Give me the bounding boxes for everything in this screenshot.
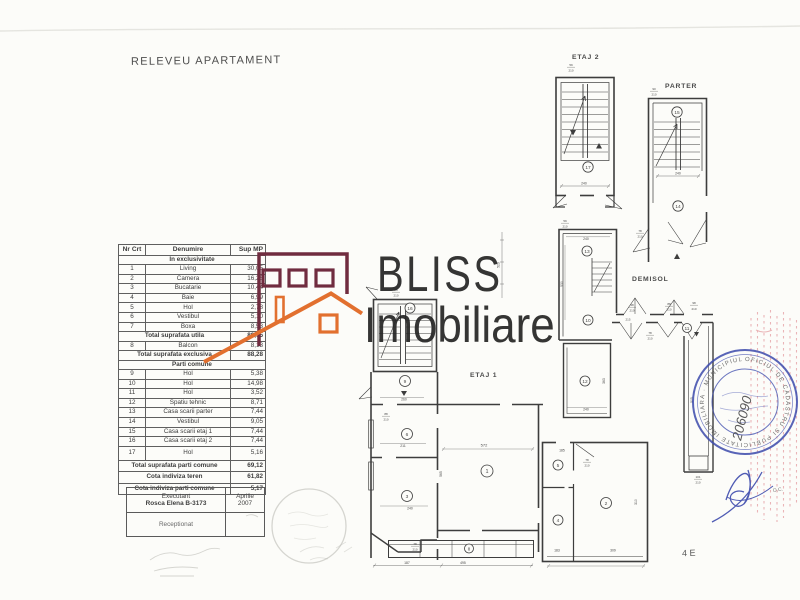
room-number-15: 15	[674, 110, 680, 116]
parter-plan: PARTER 15 240 14 90 210 78 210	[633, 83, 707, 262]
demisol-label: DEMISOL	[632, 276, 669, 283]
etaj2-plan: ETAJ 2 240 59 210 17	[553, 54, 622, 209]
dim-label: 211	[400, 444, 406, 448]
etaj1-label: ETAJ 1	[470, 372, 497, 379]
dim-label: 210	[647, 337, 652, 341]
pencil-handwriting	[150, 515, 352, 576]
dim-label: 59	[563, 219, 567, 223]
dim-label: 90	[652, 87, 656, 91]
room-number-2: 2	[605, 501, 608, 507]
etaj2-label: ETAJ 2	[572, 54, 599, 61]
document-title: RELEVEU APARTAMENT	[131, 54, 282, 68]
dim-label: 210	[691, 307, 696, 311]
room-number-11: 11	[685, 326, 690, 332]
dim-label: 240	[407, 507, 413, 511]
scan-fold-line	[0, 26, 800, 31]
dim-label: 363	[602, 378, 606, 384]
dim-label: 210	[584, 464, 589, 468]
room-number-6: 6	[406, 432, 409, 438]
room-number-4: 4	[557, 518, 560, 524]
stamp-registration-number: 206090	[729, 394, 755, 443]
page-mark: 4 E	[682, 548, 696, 558]
room-number-3: 3	[406, 494, 409, 500]
logo-roof-icon	[204, 294, 362, 363]
dim-label: 565	[439, 471, 443, 477]
room-number-17: 17	[585, 165, 591, 171]
dim-label: 210	[412, 548, 417, 552]
dim-label: 240	[583, 408, 589, 412]
dim-label: 88	[384, 412, 388, 416]
room-number-12: 12	[582, 379, 588, 385]
brand-subname: Imobiliare	[364, 300, 555, 350]
dim-label: 78	[648, 331, 652, 335]
dim-label: 572	[481, 443, 488, 448]
dim-label: 78	[638, 229, 642, 233]
dim-label: 210	[637, 235, 642, 239]
dim-label: 495	[460, 561, 466, 565]
dim-label: 210	[651, 93, 656, 97]
room-number-9: 9	[404, 379, 407, 385]
dim-label: 187	[404, 561, 410, 565]
dim-label: 101	[695, 475, 700, 479]
dim-label: 310	[634, 499, 638, 505]
dim-label: 309	[610, 549, 616, 553]
dim-label: 48	[630, 303, 634, 307]
dim-label: 210	[666, 308, 671, 312]
dim-label: 210	[629, 309, 634, 313]
room-number-14: 14	[675, 204, 681, 210]
room-number-5: 5	[557, 463, 560, 469]
dim-label: 240	[583, 237, 589, 241]
round-stamp-ring-text: OFICIUL DE CADASTRU SI PUBLICITATE IMOBI…	[0, 0, 790, 447]
dim-label: 260	[401, 398, 407, 402]
dim-label: 78	[413, 542, 417, 546]
demisol-plan: DEMISOL 13 10 240 530 59 210 48 210 88	[559, 219, 713, 485]
dim-label: 210	[695, 481, 700, 485]
dim-label: 210	[383, 418, 388, 422]
parter-label: PARTER	[665, 83, 697, 90]
dim-label: 240	[675, 172, 681, 176]
dim-label: 59	[569, 63, 573, 67]
dim-label: 88	[667, 302, 671, 306]
dim-label: 210	[568, 69, 573, 73]
scanned-document-page: RELEVEU APARTAMENT Nr Crt Denumire Sup M…	[0, 0, 800, 600]
dim-label: 530	[560, 281, 564, 287]
room-number-13: 13	[584, 249, 590, 255]
room-number-1: 1	[485, 469, 488, 475]
dim-label: 215	[625, 318, 630, 322]
dim-label: 183	[554, 549, 560, 553]
red-stamp-fragment: O.C.	[772, 487, 783, 494]
dim-label: 98	[692, 301, 696, 305]
dim-label: 185	[559, 449, 565, 453]
pencil-stamp	[272, 489, 346, 563]
room-number-10: 10	[585, 318, 591, 324]
dim-label: 78	[585, 458, 589, 462]
brand-name: BLISS	[377, 249, 502, 299]
dim-label: 210	[562, 225, 567, 229]
dim-label: 240	[581, 182, 587, 186]
